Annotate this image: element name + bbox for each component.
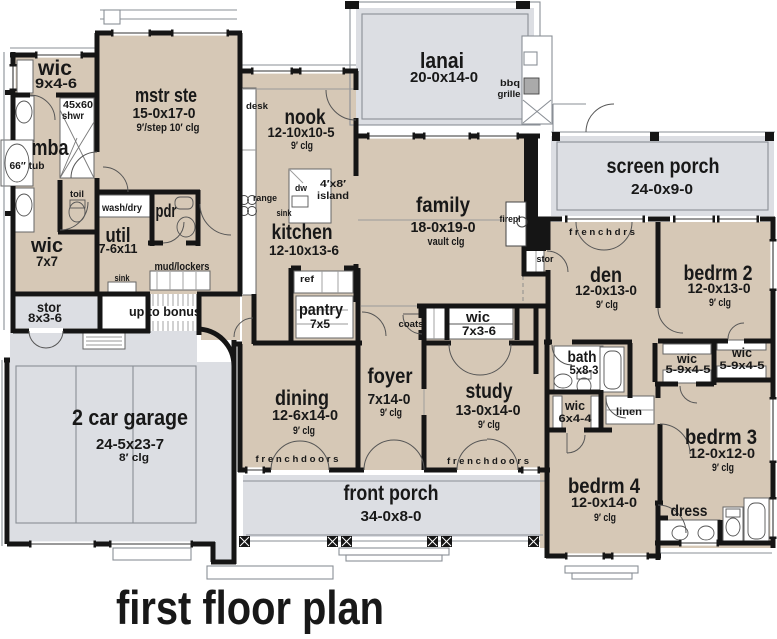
svg-text:front porch: front porch [344,482,439,505]
svg-text:sink: sink [115,273,131,284]
svg-text:linen: linen [616,407,642,418]
svg-text:4′x8′: 4′x8′ [320,179,347,190]
svg-text:8′ clg: 8′ clg [119,452,149,464]
svg-text:7x3-6: 7x3-6 [462,324,496,338]
svg-text:pdr: pdr [156,201,177,221]
svg-text:mba: mba [32,135,70,160]
svg-text:f r e n c h d r s: f r e n c h d r s [569,227,635,237]
svg-text:12-0x12-0: 12-0x12-0 [689,445,755,461]
svg-text:mud/lockers: mud/lockers [155,261,210,273]
svg-text:66″ tub: 66″ tub [10,161,45,172]
svg-text:9′ clg: 9′ clg [594,512,616,524]
svg-text:6x4-4: 6x4-4 [559,413,593,425]
svg-text:18-0x19-0: 18-0x19-0 [411,219,476,236]
svg-text:8x3-6: 8x3-6 [28,311,62,325]
svg-text:24-0x9-0: 24-0x9-0 [631,181,693,198]
svg-text:kitchen: kitchen [272,221,333,244]
svg-text:9′ clg: 9′ clg [596,299,618,311]
svg-text:wic: wic [731,345,752,360]
svg-text:12-10x10-5: 12-10x10-5 [268,124,335,140]
svg-text:mstr ste: mstr ste [135,85,197,107]
svg-text:toil: toil [70,189,84,200]
svg-text:stor: stor [537,254,554,265]
svg-text:12-10x13-6: 12-10x13-6 [269,242,339,258]
svg-text:family: family [416,194,470,217]
svg-text:sink: sink [277,208,293,219]
svg-text:island: island [317,191,349,202]
svg-text:coats: coats [399,319,424,330]
svg-text:5x8-3: 5x8-3 [570,363,599,377]
svg-text:5-9x4-5: 5-9x4-5 [720,360,765,372]
svg-text:desk: desk [246,101,269,112]
svg-text:f r e n c h d o o r s: f r e n c h d o o r s [256,454,339,464]
svg-text:dw: dw [295,183,308,194]
svg-text:ref: ref [300,274,315,285]
svg-text:foyer: foyer [368,365,413,388]
svg-text:12-0x13-0: 12-0x13-0 [575,282,637,298]
svg-text:vault clg: vault clg [428,236,465,248]
svg-text:7x5: 7x5 [310,317,330,331]
svg-text:wash/dry: wash/dry [101,202,142,214]
svg-text:grille: grille [498,89,521,100]
svg-text:45x60: 45x60 [63,100,93,111]
svg-text:7x14-0: 7x14-0 [368,391,411,408]
svg-text:12-6x14-0: 12-6x14-0 [272,407,338,424]
svg-text:bbq: bbq [500,78,520,89]
svg-text:first floor plan: first floor plan [116,581,384,634]
svg-text:9′ clg: 9′ clg [293,425,315,437]
svg-text:34-0x8-0: 34-0x8-0 [361,508,422,525]
svg-text:9′ clg: 9′ clg [478,419,500,431]
svg-text:2 car garage: 2 car garage [72,405,188,430]
svg-text:13-0x14-0: 13-0x14-0 [456,402,521,419]
svg-text:screen porch: screen porch [607,155,720,178]
svg-text:9′ clg: 9′ clg [380,407,402,419]
svg-text:9′ clg: 9′ clg [291,140,313,152]
svg-text:5-9x4-5: 5-9x4-5 [666,364,711,376]
svg-text:7x7: 7x7 [36,253,58,269]
svg-text:study: study [466,380,513,403]
svg-text:7-6x11: 7-6x11 [99,241,138,256]
svg-text:shwr: shwr [62,111,84,122]
svg-text:9′ clg: 9′ clg [709,297,731,309]
svg-text:dress: dress [671,503,708,520]
svg-text:up to bonus: up to bonus [129,304,201,319]
svg-text:wic: wic [564,398,585,413]
svg-text:12-0x13-0: 12-0x13-0 [688,280,751,296]
svg-text:15-0x17-0: 15-0x17-0 [133,105,196,122]
svg-text:f r e n c h d o o r s: f r e n c h d o o r s [447,456,529,466]
svg-text:firepl: firepl [500,214,521,225]
svg-text:9′/step 10′ clg: 9′/step 10′ clg [137,122,200,134]
svg-text:12-0x14-0: 12-0x14-0 [571,494,637,510]
svg-text:24-5x23-7: 24-5x23-7 [96,436,164,453]
svg-text:20-0x14-0: 20-0x14-0 [410,69,478,86]
svg-text:9′ clg: 9′ clg [712,462,734,474]
svg-text:range: range [253,193,277,204]
svg-text:9x4-6: 9x4-6 [35,75,77,91]
